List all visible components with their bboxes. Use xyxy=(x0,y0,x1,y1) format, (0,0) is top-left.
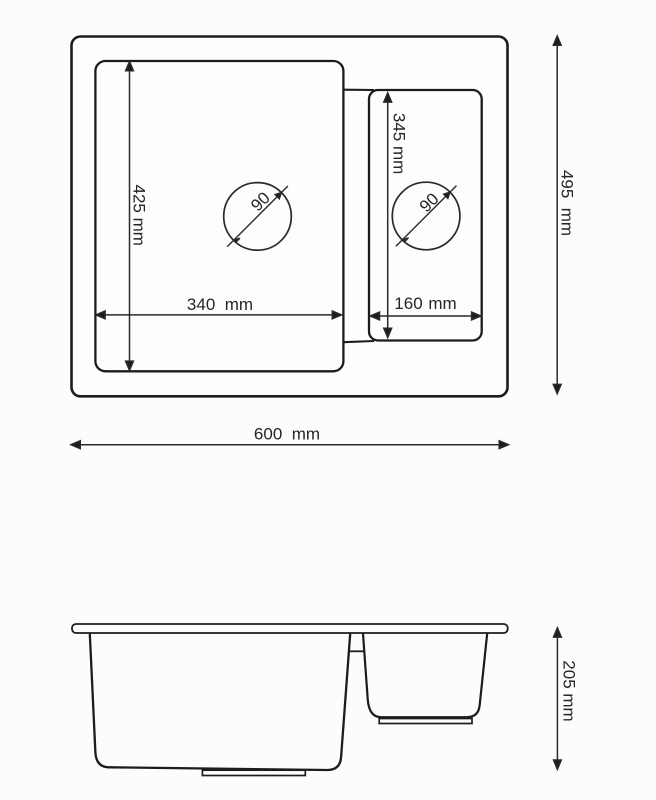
svg-text:205 mm: 205 mm xyxy=(560,660,579,721)
svg-text:600 mm: 600 mm xyxy=(254,424,320,443)
svg-text:345 mm: 345 mm xyxy=(390,113,409,174)
svg-text:160 mm: 160 mm xyxy=(394,294,456,313)
svg-text:340 mm: 340 mm xyxy=(187,295,253,314)
svg-text:425 mm: 425 mm xyxy=(130,184,149,245)
svg-text:495 mm: 495 mm xyxy=(558,170,577,236)
